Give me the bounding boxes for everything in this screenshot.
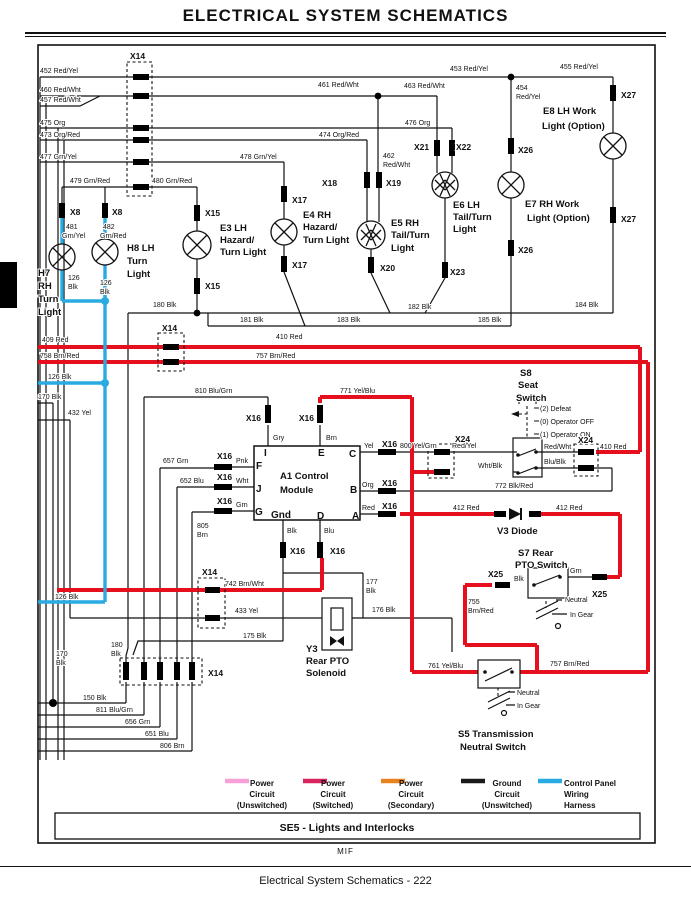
wire-label: Grn bbox=[236, 502, 248, 509]
wire-label: 476 Org bbox=[405, 120, 430, 127]
component-label: Tail/Turn bbox=[453, 212, 492, 223]
wire-label: 170 bbox=[56, 651, 68, 658]
component-label: H8 LH bbox=[127, 243, 155, 254]
wire-label: Blk bbox=[100, 289, 110, 296]
wire-label: 480 Grn/Red bbox=[152, 178, 192, 185]
component-label: S5 Transmission bbox=[458, 729, 534, 740]
s5-transmission-neutral-switch bbox=[478, 660, 520, 716]
pin-label: F bbox=[256, 461, 262, 472]
component-label: Turn Light bbox=[220, 247, 267, 258]
connector-label: X25 bbox=[488, 569, 503, 579]
wire-label: Grn bbox=[570, 568, 582, 575]
a1-control-module-box bbox=[254, 446, 360, 520]
footer-mif: MIF bbox=[0, 847, 691, 856]
connector-label: X24 bbox=[455, 434, 470, 444]
wire-label: 474 Org/Red bbox=[319, 132, 359, 139]
wire-label: Blk bbox=[56, 660, 66, 667]
lamp-e3-lh-hazard-turn bbox=[183, 231, 211, 259]
wire-label: Blk bbox=[514, 576, 524, 583]
wire-label: 478 Grn/Yel bbox=[240, 154, 277, 161]
wire-label: 656 Grn bbox=[125, 719, 150, 726]
wire-label: 170 Blk bbox=[38, 394, 62, 401]
connector-label: X24 bbox=[578, 435, 593, 445]
wire-label: 771 Yel/Blu bbox=[340, 388, 375, 395]
component-label: Light (Option) bbox=[527, 213, 590, 224]
connector-label: X16 bbox=[330, 546, 345, 556]
wire-label: Org bbox=[362, 482, 374, 489]
wire-label: 482 bbox=[103, 224, 115, 231]
wire-label: 181 Blk bbox=[240, 317, 264, 324]
pin-label: E bbox=[318, 448, 325, 459]
legend-label: Power bbox=[399, 779, 423, 788]
component-label: V3 Diode bbox=[497, 526, 538, 537]
wire-label: Brn/Red bbox=[468, 608, 494, 615]
connector-label: X16 bbox=[382, 478, 397, 488]
wire-label: 182 Blk bbox=[408, 304, 432, 311]
legend: PowerCircuit(Unswitched)PowerCircuit(Swi… bbox=[225, 779, 616, 810]
wire-label: 126 Blk bbox=[55, 594, 79, 601]
wire-label: 176 Blk bbox=[372, 607, 396, 614]
wire-label: 479 Grn/Red bbox=[70, 178, 110, 185]
wire-label: Red bbox=[362, 505, 375, 512]
legend-label: (Switched) bbox=[313, 801, 354, 810]
wire-label: 757 Brn/Red bbox=[550, 661, 589, 668]
wire-label: 806 Brn bbox=[160, 743, 185, 750]
component-label: S7 Rear bbox=[518, 548, 554, 559]
connector-label: X27 bbox=[621, 90, 636, 100]
legend-label: Power bbox=[250, 779, 274, 788]
lamp-e4-rh-hazard-turn bbox=[271, 219, 297, 245]
component-label: Turn Light bbox=[303, 235, 350, 246]
wire-label: Red/Wht bbox=[383, 162, 410, 169]
section-label: SE5 - Lights and Interlocks bbox=[280, 822, 415, 834]
component-label: E7 RH Work bbox=[525, 199, 580, 210]
wire-label: 758 Brn/Red bbox=[40, 353, 79, 360]
wire-label: Blk bbox=[366, 588, 376, 595]
wire-label: 452 Red/Yel bbox=[40, 68, 78, 75]
lamp-e6-lh-tail-turn bbox=[432, 172, 458, 198]
legend-label: (Secondary) bbox=[388, 801, 435, 810]
wire-label: In Gear bbox=[517, 703, 541, 710]
component-label: E3 LH bbox=[220, 223, 247, 234]
component-label: Seat bbox=[518, 380, 539, 391]
wire-label: 657 Grn bbox=[163, 458, 188, 465]
pin-label: J bbox=[256, 484, 262, 495]
wire-label: Gry bbox=[273, 435, 285, 442]
component-label: PTO Switch bbox=[515, 560, 568, 571]
component-label: RH bbox=[38, 281, 52, 292]
legend-label: Circuit bbox=[320, 790, 346, 799]
connector-label: X15 bbox=[205, 208, 220, 218]
connector-label: X18 bbox=[322, 178, 337, 188]
wire-label: 805 bbox=[197, 523, 209, 530]
legend-label: Circuit bbox=[494, 790, 520, 799]
wire-label: 126 bbox=[68, 275, 80, 282]
connector-label: X14 bbox=[162, 323, 177, 333]
wire-label: Blu/Blk bbox=[544, 459, 566, 466]
wire-label: Blk bbox=[287, 528, 297, 535]
wire-label: Wht bbox=[236, 478, 249, 485]
wire-label: 453 Red/Yel bbox=[450, 66, 488, 73]
wire-label: 800 Yel/Grn bbox=[400, 443, 437, 450]
s7-rear-pto-switch bbox=[528, 568, 568, 629]
wire-label: 652 Blu bbox=[180, 478, 204, 485]
component-label: Y3 bbox=[306, 644, 318, 655]
component-label: Turn bbox=[38, 294, 59, 305]
wire-label: 742 Brn/Wht bbox=[225, 581, 264, 588]
wire-label: 126 Blk bbox=[48, 374, 72, 381]
wire-label: (2) Defeat bbox=[540, 406, 571, 413]
wire-label: Neutral bbox=[517, 690, 540, 697]
v3-diode bbox=[509, 508, 521, 520]
legend-label: Ground bbox=[493, 779, 522, 788]
legend-label: (Unswitched) bbox=[482, 801, 533, 810]
wire-label: 757 Brn/Red bbox=[256, 353, 295, 360]
wire-label: 175 Blk bbox=[243, 633, 267, 640]
connector-label: X14 bbox=[202, 567, 217, 577]
wire-label: 460 Red/Wht bbox=[40, 87, 81, 94]
wire-label: 150 Blk bbox=[83, 695, 107, 702]
wire-label: 463 Red/Wht bbox=[404, 83, 445, 90]
component-label: Switch bbox=[516, 393, 547, 404]
wire-label: Blu bbox=[324, 528, 334, 535]
schematic-page: ELECTRICAL SYSTEM SCHEMATICS bbox=[0, 0, 691, 901]
wire-label: 481 bbox=[66, 224, 78, 231]
connector-label: X16 bbox=[290, 546, 305, 556]
wire-label: 461 Red/Wht bbox=[318, 82, 359, 89]
component-label: Module bbox=[280, 485, 313, 496]
connector-label: X20 bbox=[380, 263, 395, 273]
legend-label: Circuit bbox=[398, 790, 424, 799]
wire-label: 410 Red bbox=[600, 444, 627, 451]
connector-label: X17 bbox=[292, 260, 307, 270]
connector-label: X8 bbox=[70, 207, 81, 217]
pin-label: C bbox=[349, 449, 356, 460]
wire-label: 410 Red bbox=[276, 334, 303, 341]
legend-label: (Unswitched) bbox=[237, 801, 288, 810]
connector-label: X8 bbox=[112, 207, 123, 217]
pin-label: I bbox=[264, 448, 267, 459]
wire-label: 454 bbox=[516, 85, 528, 92]
wire-label: Yel bbox=[364, 443, 374, 450]
component-label: Turn bbox=[127, 256, 148, 267]
pin-label: B bbox=[350, 485, 357, 496]
component-label: H7 bbox=[38, 268, 50, 279]
wire-label: 184 Blk bbox=[575, 302, 599, 309]
connector-label: X16 bbox=[217, 496, 232, 506]
connector-label: X16 bbox=[217, 472, 232, 482]
connector-label: X19 bbox=[386, 178, 401, 188]
component-label: Light bbox=[38, 307, 62, 318]
wire-label: Red/Yel bbox=[452, 443, 477, 450]
wire-label: 462 bbox=[383, 153, 395, 160]
component-label: Light (Option) bbox=[542, 121, 605, 132]
wire-label: Pnk bbox=[236, 458, 249, 465]
connector-label: X16 bbox=[217, 451, 232, 461]
wire-label: Blk bbox=[68, 284, 78, 291]
wire-label: Red/Yel bbox=[516, 94, 541, 101]
legend-label: Power bbox=[321, 779, 345, 788]
connector-label: X23 bbox=[450, 267, 465, 277]
connector-label: X16 bbox=[382, 501, 397, 511]
wire-label: Neutral bbox=[565, 597, 588, 604]
connector-label: X15 bbox=[205, 281, 220, 291]
wire-label: Red/Wht bbox=[544, 444, 571, 451]
connector-label: X21 bbox=[414, 142, 429, 152]
lamp-h8-lh-turn bbox=[92, 239, 118, 265]
component-label: E4 RH bbox=[303, 210, 331, 221]
pin-label: A bbox=[352, 511, 359, 522]
wire-label: In Gear bbox=[570, 612, 594, 619]
lamp-e8-lh-work bbox=[600, 133, 626, 159]
wire-label: 761 Yel/Blu bbox=[428, 663, 463, 670]
component-label: Tail/Turn bbox=[391, 230, 430, 241]
wire-label: 475 Org bbox=[40, 120, 65, 127]
component-label: Light bbox=[391, 243, 415, 254]
y3-rear-pto-solenoid bbox=[322, 598, 352, 650]
component-label: S8 bbox=[520, 368, 532, 379]
lamp-e5-rh-tail-turn bbox=[357, 221, 385, 249]
wire-label: 180 Blk bbox=[153, 302, 177, 309]
pin-label: D bbox=[317, 511, 324, 522]
component-label: Hazard/ bbox=[220, 235, 255, 246]
wiring-diagram: PowerCircuit(Unswitched)PowerCircuit(Swi… bbox=[0, 0, 691, 901]
junction-dots bbox=[49, 74, 514, 707]
wire-label: 409 Red bbox=[42, 337, 69, 344]
connector-label: X16 bbox=[299, 413, 314, 423]
pin-label: G bbox=[255, 507, 263, 518]
wire-label: Blk bbox=[111, 651, 121, 658]
legend-label: Harness bbox=[564, 801, 596, 810]
legend-label: Control Panel bbox=[564, 779, 616, 788]
wire-label: 126 bbox=[100, 280, 112, 287]
wire-label: 432 Yel bbox=[68, 410, 91, 417]
component-label: A1 Control bbox=[280, 471, 329, 482]
connector-label: X17 bbox=[292, 195, 307, 205]
component-label: Solenoid bbox=[306, 668, 346, 679]
connector-label: X26 bbox=[518, 145, 533, 155]
footer-caption: Electrical System Schematics - 222 bbox=[0, 875, 691, 887]
wire-label: Wht/Blk bbox=[478, 463, 503, 470]
footer-rule bbox=[0, 866, 691, 867]
wire-label: Brn bbox=[197, 532, 208, 539]
wire-label: Grn/Red bbox=[100, 233, 127, 240]
component-label: E8 LH Work bbox=[543, 106, 597, 117]
wire-label: 412 Red bbox=[556, 505, 583, 512]
wire-label: Grn/Yel bbox=[62, 233, 86, 240]
wire-label: 455 Red/Yel bbox=[560, 64, 598, 71]
connector-label: X27 bbox=[621, 214, 636, 224]
wire-label: 185 Blk bbox=[478, 317, 502, 324]
component-label: Hazard/ bbox=[303, 222, 338, 233]
component-label: E6 LH bbox=[453, 200, 480, 211]
component-label: Light bbox=[127, 269, 151, 280]
wire-label: 457 Red/Wht bbox=[40, 97, 81, 104]
lamp-e7-rh-work bbox=[498, 172, 524, 198]
wire-label: 477 Grn/Yel bbox=[40, 154, 77, 161]
wire-label: 412 Red bbox=[453, 505, 480, 512]
wire-label: 177 bbox=[366, 579, 378, 586]
wire-label: (0) Operator OFF bbox=[540, 419, 594, 426]
connector-label: X26 bbox=[518, 245, 533, 255]
wire-label: 810 Blu/Grn bbox=[195, 388, 232, 395]
connector-label: X16 bbox=[382, 439, 397, 449]
wire-label: Brn bbox=[326, 435, 337, 442]
connector-label: X25 bbox=[592, 589, 607, 599]
wire-label: 811 Blu/Grn bbox=[96, 707, 133, 714]
wire-label: 755 bbox=[468, 599, 480, 606]
wire-label: 473 Org/Red bbox=[40, 132, 80, 139]
wire-label: 180 bbox=[111, 642, 123, 649]
connector-label: X14 bbox=[208, 668, 223, 678]
connector-label: X16 bbox=[246, 413, 261, 423]
pin-label: Gnd bbox=[271, 510, 291, 521]
wire-label: 651 Blu bbox=[145, 731, 169, 738]
lamp-h7-rh-turn bbox=[49, 244, 75, 270]
component-label: Rear PTO bbox=[306, 656, 349, 667]
wire-label: 772 Blk/Red bbox=[495, 483, 533, 490]
connector-label: X22 bbox=[456, 142, 471, 152]
wire-label: 183 Blk bbox=[337, 317, 361, 324]
wire-label: 433 Yel bbox=[235, 608, 258, 615]
component-label: E5 RH bbox=[391, 218, 419, 229]
component-label: Neutral Switch bbox=[460, 742, 526, 753]
component-label: Light bbox=[453, 224, 477, 235]
legend-label: Wiring bbox=[564, 790, 589, 799]
legend-label: Circuit bbox=[249, 790, 275, 799]
connector-label: X14 bbox=[130, 51, 145, 61]
